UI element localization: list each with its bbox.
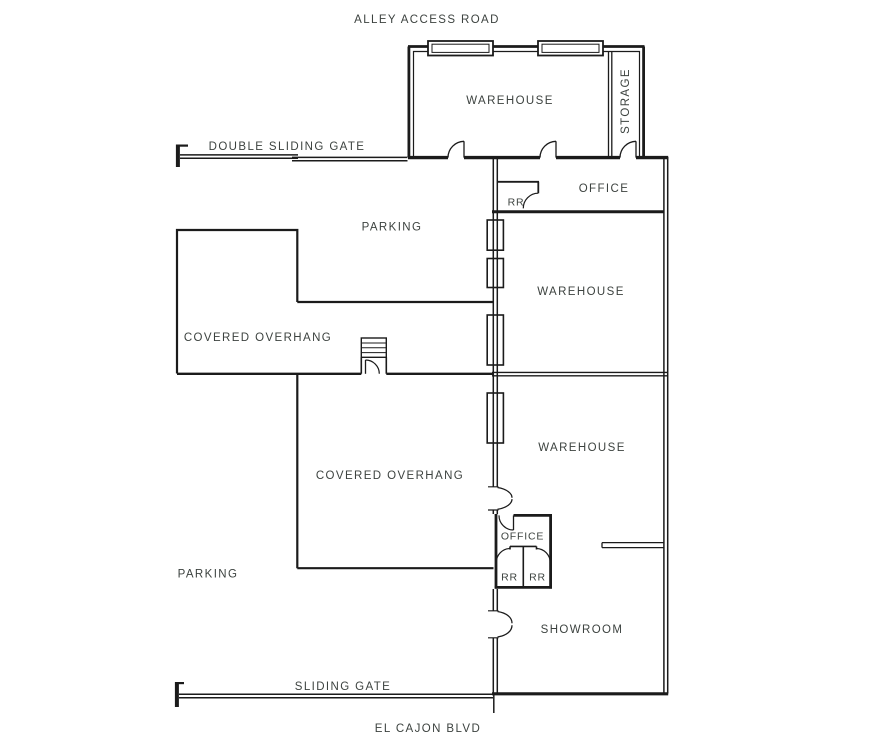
room-label-office-lower: OFFICE (501, 531, 544, 543)
area-label-parking-upper: PARKING (362, 222, 423, 234)
door-arc-restroom-upper (523, 193, 538, 208)
room-label-showroom: SHOWROOM (541, 624, 624, 636)
room-label-rr-left: RR (501, 572, 518, 584)
room-label-storage: STORAGE (620, 68, 632, 134)
room-label-rr-right: RR (529, 572, 546, 584)
gate-label-double-sliding: DOUBLE SLIDING GATE (209, 141, 366, 153)
door-arc-storage (620, 141, 636, 157)
door-arc-warehouse-top-left (448, 141, 464, 157)
door-arc-restroom-right (537, 549, 551, 563)
area-label-overhang-upper: COVERED OVERHANG (184, 332, 332, 344)
street-label-top: ALLEY ACCESS ROAD (354, 14, 500, 26)
west-wall (493, 157, 497, 693)
double-door-showroom (488, 611, 512, 638)
rollup-doors-west-wall (487, 220, 503, 443)
stairs (361, 338, 386, 374)
floor-plan: ALLEY ACCESS ROAD DOUBLE SLIDING GATE WA… (0, 0, 875, 745)
partial-wall (602, 543, 664, 548)
double-door-warehouse-lower (488, 487, 512, 510)
loading-door-top-right (538, 41, 603, 56)
room-label-rr-upper: RR (508, 197, 525, 209)
covered-overhang-upper-walls (177, 230, 493, 374)
door-arc-restroom-left (496, 549, 510, 563)
door-arc-warehouse-top-mid (540, 141, 556, 157)
room-label-warehouse-lower: WAREHOUSE (538, 442, 626, 454)
area-label-overhang-lower: COVERED OVERHANG (316, 470, 464, 482)
room-label-warehouse-middle: WAREHOUSE (537, 286, 625, 298)
loading-door-top-left (428, 41, 493, 56)
door-arc-stairs (366, 360, 380, 374)
room-label-office-upper: OFFICE (579, 183, 630, 195)
room-label-warehouse-top: WAREHOUSE (466, 95, 554, 107)
gate-label-sliding: SLIDING GATE (295, 681, 391, 693)
storage-partition-wall (609, 52, 612, 157)
east-wall (664, 157, 668, 694)
area-label-parking-lower: PARKING (178, 569, 239, 581)
street-label-bottom: EL CAJON BLVD (375, 723, 481, 735)
shared-top-wall (408, 141, 668, 157)
door-arc-office-lower (499, 515, 514, 530)
warehouse-divider-wall (492, 372, 668, 375)
floor-plan-svg: ALLEY ACCESS ROAD DOUBLE SLIDING GATE WA… (0, 0, 875, 745)
